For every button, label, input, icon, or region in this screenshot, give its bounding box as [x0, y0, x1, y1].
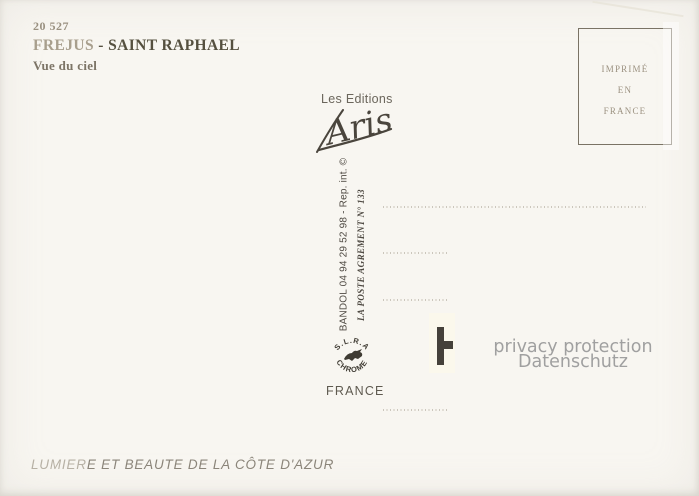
- lion-emblem-icon: [344, 349, 362, 361]
- redaction-bar: [437, 327, 444, 365]
- card-reference-number: 20 527: [33, 19, 69, 34]
- card-title-city-faded: FREJUS: [33, 37, 94, 54]
- paper-crease-band: [663, 22, 679, 150]
- country-label: FRANCE: [326, 384, 382, 398]
- address-dotted-line-2: [383, 252, 448, 254]
- stamp-box: IMPRIMÉ EN FRANCE: [578, 28, 672, 145]
- redacted-handwriting-mark: [429, 313, 455, 373]
- footer-slogan-faded: LUMIER: [31, 457, 87, 472]
- slra-chrome-logo: S.L.R.A CHROME: [330, 335, 374, 379]
- footer-slogan: LUMIERE ET BEAUTE DE LA CÔTE D'AZUR: [31, 457, 334, 472]
- address-dotted-line-3: [383, 299, 449, 301]
- poste-agrement-line: LA POSTE AGREMENT N° 133: [356, 191, 366, 321]
- stamp-box-line-2: EN: [579, 80, 671, 101]
- signature-text: Aris: [319, 100, 396, 153]
- stamp-box-line-1: IMPRIMÉ: [579, 59, 671, 80]
- redaction-stub: [444, 341, 453, 349]
- address-dotted-line-1: [383, 206, 646, 208]
- stamp-box-line-3: FRANCE: [579, 101, 671, 122]
- svg-text:S.L.R.A: S.L.R.A: [332, 336, 371, 352]
- card-title-rest: - SAINT RAPHAEL: [94, 37, 240, 54]
- paper-crease: [592, 1, 683, 17]
- address-dotted-line-4: [383, 409, 449, 411]
- publisher-phone-line: BANDOL 04 94 29 52 98 - Rep. int. ©: [339, 157, 350, 333]
- card-title: FREJUS - SAINT RAPHAEL: [33, 37, 240, 55]
- logo-arc-top-text: S.L.R.A: [332, 336, 371, 352]
- footer-slogan-main: E ET BEAUTE DE LA CÔTE D'AZUR: [87, 457, 334, 472]
- privacy-watermark: privacy protection Datenschutz: [462, 340, 684, 369]
- card-subtitle: Vue du ciel: [33, 58, 97, 74]
- postcard-back: 20 527 FREJUS - SAINT RAPHAEL Vue du cie…: [0, 0, 699, 496]
- publisher-signature-logo: Aris: [309, 100, 397, 158]
